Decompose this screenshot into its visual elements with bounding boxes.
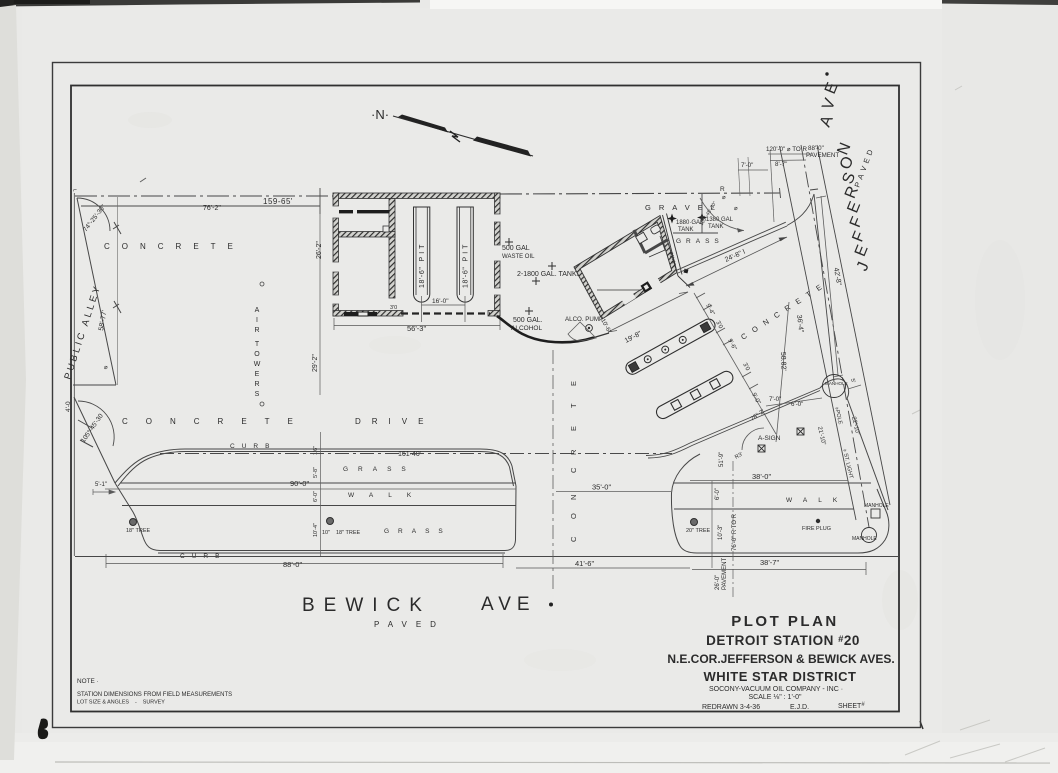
svg-text:R: R [254,381,259,388]
svg-text:WALK: WALK [786,497,848,504]
svg-text:20" TREE: 20" TREE [686,528,710,534]
svg-text:6'-0": 6'-0" [715,488,721,500]
svg-text:16'-0": 16'-0" [432,298,449,305]
svg-text:6'-0": 6'-0" [313,491,319,502]
svg-text:51'-9": 51'-9" [719,452,725,467]
svg-text:PAVEMENT: PAVEMENT [806,152,839,159]
svg-text:O: O [254,351,260,358]
svg-text:6'-0": 6'-0" [791,401,803,408]
svg-text:E: E [569,381,578,386]
svg-text:GRASS: GRASS [384,528,452,535]
svg-text:⌐: ⌐ [73,187,77,194]
svg-text:76'-2": 76'-2" [203,205,221,212]
svg-text:REDRAWN 3-4-36: REDRAWN 3-4-36 [702,704,760,711]
svg-text:R: R [720,186,725,193]
svg-text:GRASS: GRASS [343,466,416,473]
svg-text:·N·: ·N· [371,107,389,122]
svg-text:35'-0": 35'-0" [592,483,611,492]
svg-text:NOTE ·: NOTE · [77,678,99,685]
svg-text:BEWICK: BEWICK [302,595,431,616]
svg-text:500 GAL.: 500 GAL. [513,317,543,324]
svg-text:159-65': 159-65' [263,197,293,206]
svg-text:41'-6": 41'-6" [575,559,594,568]
svg-text:PLOT PLAN: PLOT PLAN [731,613,839,630]
svg-text:3'0: 3'0 [390,305,397,311]
svg-text:CURB: CURB [230,443,276,450]
svg-text:10": 10" [322,530,330,536]
svg-text:8'-7": 8'-7" [775,161,787,168]
svg-text:18'-6" P I T: 18'-6" P I T [463,244,470,288]
svg-text:2-1800 GAL. TANKS: 2-1800 GAL. TANKS [517,271,582,278]
svg-text:CONCRETE: CONCRETE [104,242,245,251]
svg-text:E: E [569,426,578,431]
svg-text:T: T [569,403,578,408]
svg-text:500 GAL: 500 GAL [502,245,530,252]
svg-text:58.82': 58.82' [779,352,787,371]
svg-text:29'-2": 29'-2" [312,354,319,372]
svg-text:⌀: ⌀ [722,195,726,201]
svg-text:7'-0": 7'-0" [741,162,753,169]
svg-text:10'-4": 10'-4" [313,523,319,537]
svg-text:1380 GAL: 1380 GAL [706,217,734,223]
svg-text:N: N [569,495,578,500]
svg-text:T: T [255,341,260,348]
svg-text:DETROIT STATION #20: DETROIT STATION #20 [706,633,860,648]
svg-text:MANHOLE: MANHOLE [864,503,889,509]
svg-text:N.E.COR.JEFFERSON & BEWICK AVE: N.E.COR.JEFFERSON & BEWICK AVES. [667,652,894,666]
svg-text:120'-0" ⌀ TO R: 120'-0" ⌀ TO R [766,146,807,153]
svg-text:W: W [254,361,261,368]
svg-text:88'-0": 88'-0" [283,560,302,569]
svg-text:E.J.D.: E.J.D. [790,704,809,711]
svg-text:PAVED: PAVED [374,620,445,629]
svg-text:WALK: WALK [348,492,426,499]
svg-text:TANK: TANK [678,227,694,233]
svg-text:TANK: TANK [708,224,724,230]
svg-text:26'-2": 26'-2" [316,241,323,259]
svg-text:A-SIGN: A-SIGN [758,435,781,442]
svg-text:18" TREE: 18" TREE [126,528,150,534]
svg-text:LOT SIZE & ANGLES - SURV: LOT SIZE & ANGLES - SURVEY [77,700,165,706]
svg-text:C: C [569,536,578,542]
svg-text:PAVEMENT: PAVEMENT [722,558,728,590]
svg-text:MANHOLE: MANHOLE [825,381,848,386]
svg-text:38'-0": 38'-0" [752,472,771,481]
svg-text:56'-3": 56'-3" [407,324,426,333]
svg-text:SCALE ⅛" : 1'-0": SCALE ⅛" : 1'-0" [749,694,803,701]
svg-text:88'-0": 88'-0" [808,145,824,152]
svg-text:5'-1": 5'-1" [95,482,107,488]
svg-text:WHITE STAR DISTRICT: WHITE STAR DISTRICT [704,669,857,684]
svg-text:CONCRETE: CONCRETE [122,417,311,426]
svg-text:18" TREE: 18" TREE [336,530,360,536]
svg-text:26'-0": 26'-0" [715,575,721,590]
svg-text:4'-0: 4'-0 [65,401,72,412]
svg-text:O: O [569,513,578,519]
svg-text:18'-6" P I T: 18'-6" P I T [419,244,426,288]
svg-text:ALCO. PUMP: ALCO. PUMP [565,316,603,323]
svg-text:SHEET#: SHEET# [838,702,865,710]
svg-text:90'-0": 90'-0" [290,479,309,488]
svg-text:10'-3": 10'-3" [718,525,724,540]
svg-text:R: R [569,449,578,455]
svg-text:FIRE PLUG: FIRE PLUG [802,526,831,532]
svg-text:AVE: AVE [481,594,536,615]
svg-text:A: A [255,307,260,314]
svg-text:SOCONY-VACUUM OIL COMPANY - IN: SOCONY-VACUUM OIL COMPANY - INC · [709,686,843,693]
svg-text:GRASS: GRASS [676,238,724,245]
svg-text:5'-8": 5'-8" [313,467,319,478]
svg-text:161·40': 161·40' [398,451,421,458]
svg-text:R: R [254,327,259,334]
svg-text:STATION DIMENSIONS FROM FIELD: STATION DIMENSIONS FROM FIELD MEASUREMEN… [77,692,232,698]
svg-text:E: E [255,371,260,378]
svg-text:MANHOLE: MANHOLE [852,536,877,542]
svg-text:38'-7": 38'-7" [760,558,779,567]
svg-text:C: C [569,467,578,473]
svg-text:⌀: ⌀ [734,206,738,212]
svg-text:I: I [256,317,258,324]
svg-text:7'-0": 7'-0" [769,396,781,403]
svg-text:S: S [255,391,260,398]
svg-text:⌀: ⌀ [104,365,108,371]
svg-text:WASTE OIL: WASTE OIL [502,254,535,260]
svg-text:DRIVE: DRIVE [355,417,434,426]
